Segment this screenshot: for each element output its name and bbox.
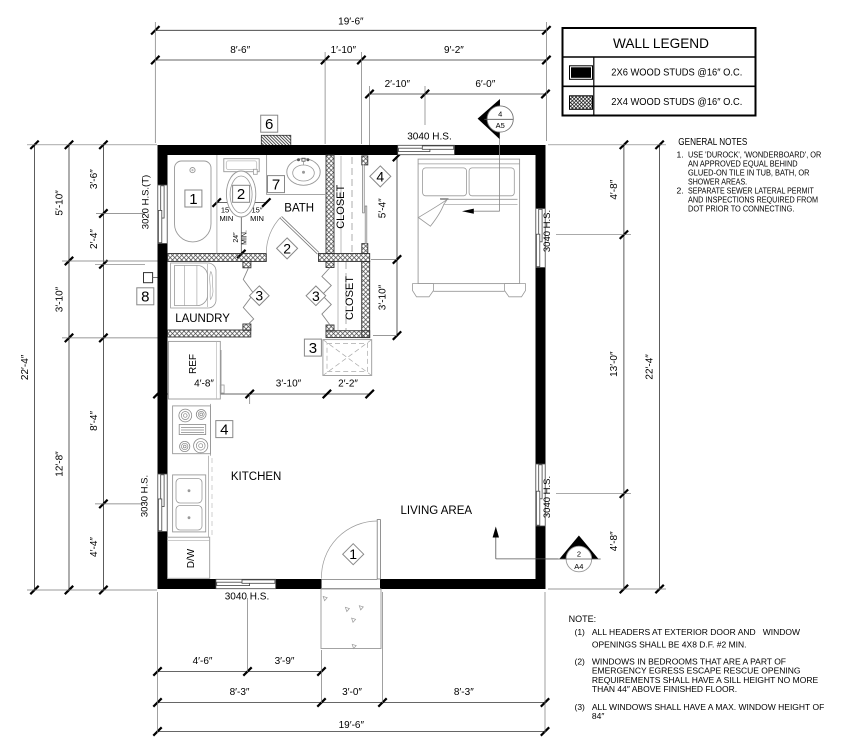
svg-text:3′-6″: 3′-6″ <box>89 169 100 189</box>
svg-text:8′-3″: 8′-3″ <box>230 687 250 698</box>
svg-text:(2): (2) <box>575 657 586 667</box>
svg-text:2X6 WOOD STUDS @16″ O.C.: 2X6 WOOD STUDS @16″ O.C. <box>611 67 742 79</box>
svg-text:DOT PRIOR TO CONNECTING.: DOT PRIOR TO CONNECTING. <box>688 204 794 214</box>
svg-text:1: 1 <box>349 546 357 562</box>
svg-text:LAUNDRY: LAUNDRY <box>175 313 230 325</box>
svg-text:3: 3 <box>309 340 317 357</box>
svg-text:3040 H.S.: 3040 H.S. <box>542 476 553 518</box>
svg-text:22′-4″: 22′-4″ <box>20 354 31 380</box>
svg-text:2′-10″: 2′-10″ <box>385 79 411 90</box>
svg-text:4′-8″: 4′-8″ <box>609 531 620 551</box>
svg-text:(1): (1) <box>575 627 586 637</box>
svg-text:4′-8″: 4′-8″ <box>609 179 620 199</box>
svg-text:GENERAL NOTES: GENERAL NOTES <box>678 136 747 148</box>
svg-text:3: 3 <box>312 288 320 304</box>
svg-text:4: 4 <box>376 168 384 184</box>
svg-text:KITCHEN: KITCHEN <box>231 471 281 483</box>
svg-text:2: 2 <box>237 186 245 203</box>
svg-text:2′-2″: 2′-2″ <box>338 379 358 390</box>
svg-text:8′-3″: 8′-3″ <box>454 687 474 698</box>
svg-text:84″: 84″ <box>592 711 604 721</box>
svg-text:5′-10″: 5′-10″ <box>55 190 66 216</box>
svg-text:6′-0″: 6′-0″ <box>475 79 495 90</box>
svg-text:MIN: MIN <box>220 214 234 223</box>
svg-text:1′-10″: 1′-10″ <box>331 45 357 56</box>
svg-text:A4: A4 <box>574 562 583 571</box>
svg-text:12′-8″: 12′-8″ <box>55 451 66 477</box>
svg-text:3′-0″: 3′-0″ <box>342 687 362 698</box>
svg-text:3′-10″: 3′-10″ <box>276 379 302 390</box>
svg-text:(3): (3) <box>575 702 586 712</box>
svg-text:7: 7 <box>272 177 280 194</box>
svg-text:3040 H.S.: 3040 H.S. <box>542 210 553 252</box>
svg-text:4: 4 <box>498 109 502 118</box>
svg-text:5′-4″: 5′-4″ <box>378 198 389 218</box>
svg-text:NOTE:: NOTE: <box>569 614 597 624</box>
svg-text:2X4 WOOD STUDS @16″ O.C.: 2X4 WOOD STUDS @16″ O.C. <box>611 96 742 108</box>
svg-text:CLOSET: CLOSET <box>335 185 347 229</box>
svg-text:3′-10″: 3′-10″ <box>55 286 66 312</box>
svg-text:3: 3 <box>255 288 263 304</box>
svg-text:19′-6″: 19′-6″ <box>339 720 365 731</box>
svg-text:8′-4″: 8′-4″ <box>89 411 100 431</box>
svg-text:4: 4 <box>220 422 228 439</box>
svg-text:19′-6″: 19′-6″ <box>338 17 364 28</box>
svg-text:3′-9″: 3′-9″ <box>275 656 295 667</box>
svg-text:4′-6″: 4′-6″ <box>193 656 213 667</box>
svg-text:2.: 2. <box>677 186 684 196</box>
svg-text:3040 H.S.: 3040 H.S. <box>225 592 269 603</box>
svg-text:THAN 44″ ABOVE FINISHED FLOOR.: THAN 44″ ABOVE FINISHED FLOOR. <box>592 684 737 694</box>
svg-text:MIN: MIN <box>250 214 264 223</box>
svg-text:3040 H.S.: 3040 H.S. <box>407 132 451 143</box>
svg-text:6: 6 <box>265 116 273 133</box>
svg-text:24″: 24″ <box>233 232 240 243</box>
svg-text:3020 H.S.(T): 3020 H.S.(T) <box>141 175 152 229</box>
svg-text:1: 1 <box>189 191 197 208</box>
svg-text:MIN.: MIN. <box>242 230 249 245</box>
svg-text:8: 8 <box>141 289 149 306</box>
svg-text:9′-2″: 9′-2″ <box>444 45 464 56</box>
svg-text:ALL WINDOWS SHALL HAVE A MAX.: ALL WINDOWS SHALL HAVE A MAX. WINDOW HEI… <box>592 702 824 712</box>
svg-text:CLOSET: CLOSET <box>344 276 356 320</box>
svg-text:22′-4″: 22′-4″ <box>645 354 656 380</box>
svg-text:2′-4″: 2′-4″ <box>89 229 100 249</box>
svg-text:2: 2 <box>283 240 291 256</box>
svg-text:1.: 1. <box>677 149 684 159</box>
svg-text:4′-4″: 4′-4″ <box>89 537 100 557</box>
svg-text:13′-0″: 13′-0″ <box>609 351 620 377</box>
svg-text:3030 H.S.: 3030 H.S. <box>140 475 151 517</box>
svg-text:ALL HEADERS AT EXTERIOR DOOR A: ALL HEADERS AT EXTERIOR DOOR AND WINDOW <box>592 627 800 637</box>
svg-text:OPENINGS SHALL BE 4X8 D.F. #2: OPENINGS SHALL BE 4X8 D.F. #2 MIN. <box>592 639 747 649</box>
svg-text:2: 2 <box>577 550 581 559</box>
svg-text:BATH: BATH <box>284 203 314 215</box>
svg-text:REF: REF <box>188 354 199 374</box>
svg-text:3′-10″: 3′-10″ <box>378 284 389 310</box>
svg-text:WALL LEGEND: WALL LEGEND <box>613 35 709 51</box>
svg-text:4′-8″: 4′-8″ <box>194 379 214 390</box>
svg-text:A5: A5 <box>496 121 505 130</box>
svg-text:LIVING AREA: LIVING AREA <box>401 505 473 517</box>
svg-text:8′-6″: 8′-6″ <box>230 45 250 56</box>
svg-text:D/W: D/W <box>186 548 197 568</box>
